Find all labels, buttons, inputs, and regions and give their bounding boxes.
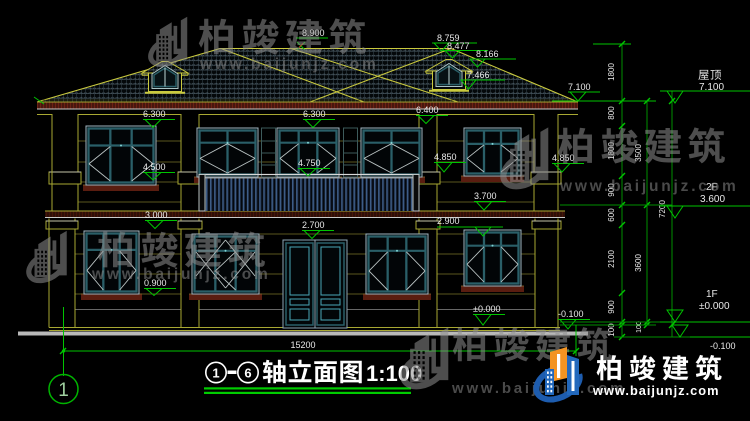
svg-text:-0.100: -0.100 [558,309,584,319]
svg-text:8.166: 8.166 [476,49,499,59]
svg-text:www.baijunjz.com: www.baijunjz.com [91,266,271,283]
svg-text:4.500: 4.500 [143,162,166,172]
svg-text:800: 800 [607,106,616,120]
svg-text:4.850: 4.850 [434,152,457,162]
svg-text:www.baijunjz.com: www.baijunjz.com [592,383,719,398]
svg-text:±0.000: ±0.000 [473,304,500,314]
svg-text:100: 100 [636,321,643,333]
svg-text:1F: 1F [706,289,718,300]
svg-text:4.750: 4.750 [298,158,321,168]
svg-text:1800: 1800 [607,63,616,81]
svg-text:-0.100: -0.100 [710,341,736,351]
svg-text:3.000: 3.000 [145,210,168,220]
svg-text:7200: 7200 [658,200,667,218]
svg-text:6.300: 6.300 [143,109,166,119]
svg-text:www.baijunjz.com: www.baijunjz.com [199,56,379,73]
svg-text:3500: 3500 [634,144,643,162]
svg-text:8.477: 8.477 [447,41,470,51]
svg-text:2.700: 2.700 [302,220,325,230]
svg-text:2.900: 2.900 [437,216,460,226]
svg-text:±0.000: ±0.000 [699,301,730,312]
svg-text:6.400: 6.400 [416,105,439,115]
svg-text:7.100: 7.100 [568,82,591,92]
svg-text:2100: 2100 [607,250,616,268]
svg-text:www.baijunjz.com: www.baijunjz.com [559,178,739,195]
svg-text:15200: 15200 [290,340,315,350]
svg-text:900: 900 [607,300,616,314]
svg-text:6.300: 6.300 [303,109,326,119]
svg-text:600: 600 [607,208,616,222]
svg-text:1: 1 [212,366,219,381]
svg-text:7.466: 7.466 [467,70,490,80]
svg-text:3.600: 3.600 [700,194,725,205]
svg-text:6: 6 [244,366,251,381]
svg-text:3.700: 3.700 [474,191,497,201]
svg-text:3600: 3600 [634,254,643,272]
svg-text:1: 1 [58,380,69,401]
